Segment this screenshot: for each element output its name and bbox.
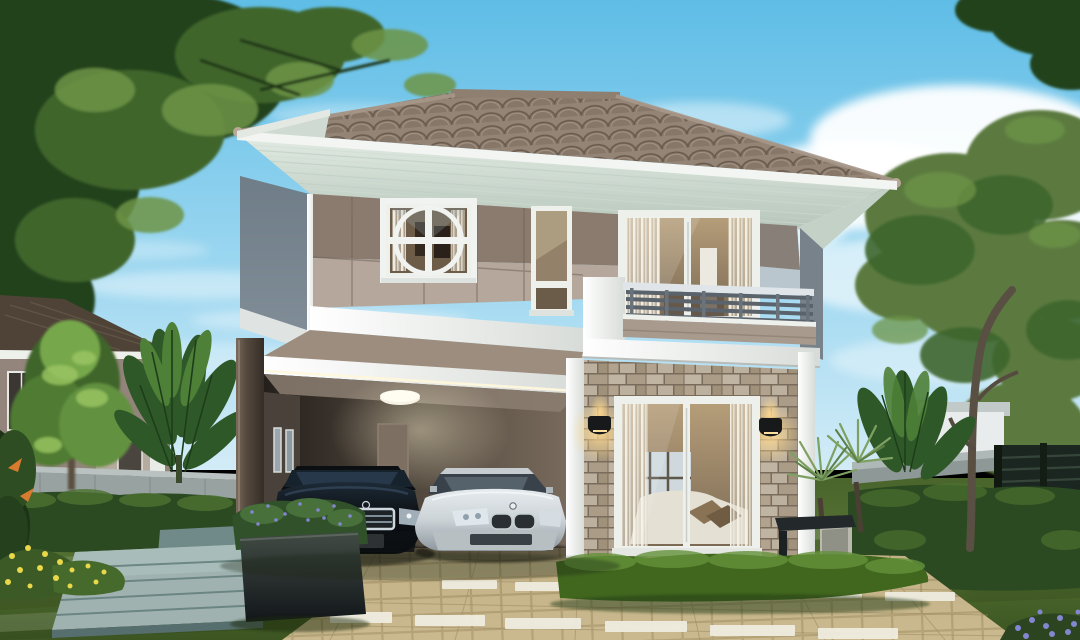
- wall-trim: [566, 358, 584, 558]
- headlight: [539, 510, 562, 527]
- ceiling-lamp: Round ceiling light: [380, 390, 420, 405]
- bmw-grille: [514, 514, 535, 529]
- circle-window: Square window with circular white mullio…: [381, 201, 476, 283]
- house-shadow: [220, 552, 620, 580]
- sliding-glass-door: Large sliding glass door with sheer curt…: [612, 396, 762, 556]
- bmw-grille: [491, 514, 512, 529]
- house-rendering-scene: Architectural rendering of a modern two-…: [0, 0, 1080, 640]
- carport-slit-window: [274, 428, 281, 472]
- tall-window: Tall narrow two-pane window: [529, 206, 574, 316]
- bmw-emblem: [510, 503, 516, 509]
- front-hedge: [550, 550, 930, 614]
- scene-canvas: Architectural rendering of a modern two-…: [0, 0, 1080, 640]
- headlight: [452, 508, 489, 526]
- carport-slit-window: [286, 430, 293, 472]
- upper-side-wall: [240, 176, 313, 334]
- balcony: Balcony with white pillar, metal railing…: [578, 277, 820, 367]
